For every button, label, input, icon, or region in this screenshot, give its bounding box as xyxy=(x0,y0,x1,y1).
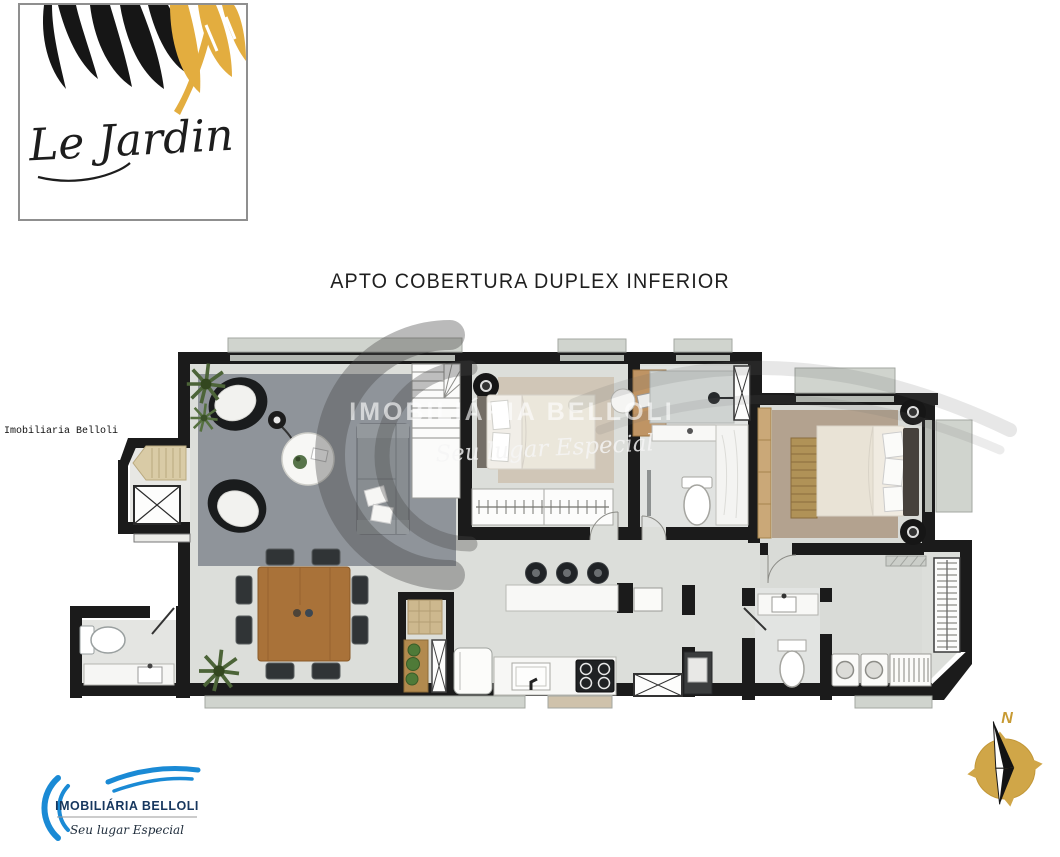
agency-logo: IMOBILIÁRIA BELLOLI Seu lugar Especial xyxy=(22,762,232,850)
floor-plan: IMOBILIÁRIA BELLOLI Seu lugar Especial xyxy=(0,0,1060,857)
cabinet xyxy=(634,588,662,611)
agency-name: IMOBILIÁRIA BELLOLI xyxy=(55,798,199,813)
agency-tagline: Seu lugar Especial xyxy=(70,823,184,837)
compass-icon: N xyxy=(955,706,1055,810)
shower-stall xyxy=(716,425,748,525)
toilet xyxy=(682,477,712,525)
bench xyxy=(791,438,817,518)
bedside-lamp xyxy=(900,519,926,545)
pantry xyxy=(404,600,446,692)
entry-door xyxy=(134,534,190,542)
island-counter xyxy=(506,585,618,611)
hanging-rack xyxy=(890,654,931,686)
bar-stools xyxy=(526,563,609,584)
dryer xyxy=(861,654,888,686)
bed xyxy=(817,426,919,516)
towel-rail xyxy=(647,470,651,516)
page: Le Jardin APTO COBERTURA DUPLEX INFERIOR… xyxy=(0,0,1060,857)
washer xyxy=(832,654,859,686)
oven-tower xyxy=(684,652,712,694)
cooktop xyxy=(576,660,614,692)
watermark-name: IMOBILIÁRIA BELLOLI xyxy=(349,397,675,426)
compass-north-label: N xyxy=(1001,710,1013,727)
toilet xyxy=(91,627,125,653)
toilet xyxy=(778,640,806,687)
wardrobe xyxy=(758,408,771,538)
shaft xyxy=(634,674,682,696)
dining-table xyxy=(258,567,350,661)
kitchen-sink xyxy=(512,663,550,690)
bench-hatched xyxy=(886,556,926,566)
drying-closet xyxy=(934,558,960,652)
closet xyxy=(472,489,613,525)
fridge xyxy=(454,648,492,694)
